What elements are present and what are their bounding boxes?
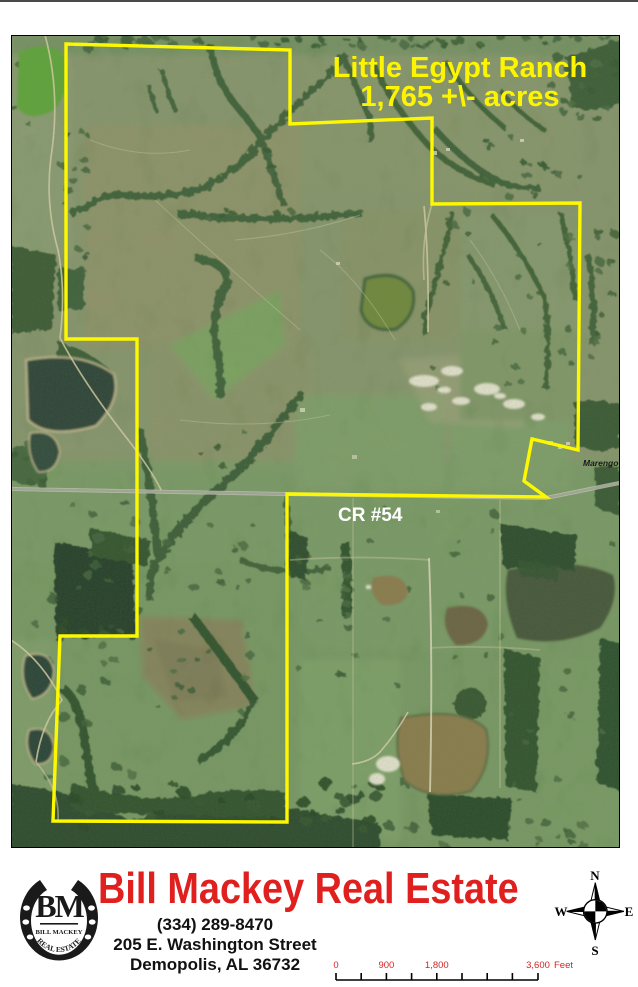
svg-text:CR #54: CR #54 bbox=[338, 505, 403, 526]
svg-text:0: 0 bbox=[333, 960, 338, 971]
svg-text:Little Egypt Ranch: Little Egypt Ranch bbox=[333, 52, 588, 84]
svg-text:W: W bbox=[555, 904, 568, 919]
svg-text:Marengo: Marengo bbox=[583, 458, 618, 468]
svg-text:E: E bbox=[625, 904, 634, 919]
svg-text:1,765 +\- acres: 1,765 +\- acres bbox=[360, 81, 559, 113]
svg-text:Feet: Feet bbox=[554, 960, 573, 971]
svg-text:N: N bbox=[590, 868, 600, 883]
svg-text:1,800: 1,800 bbox=[425, 960, 449, 971]
svg-text:S: S bbox=[591, 943, 598, 957]
svg-text:900: 900 bbox=[378, 960, 394, 971]
svg-text:3,600: 3,600 bbox=[526, 960, 550, 971]
